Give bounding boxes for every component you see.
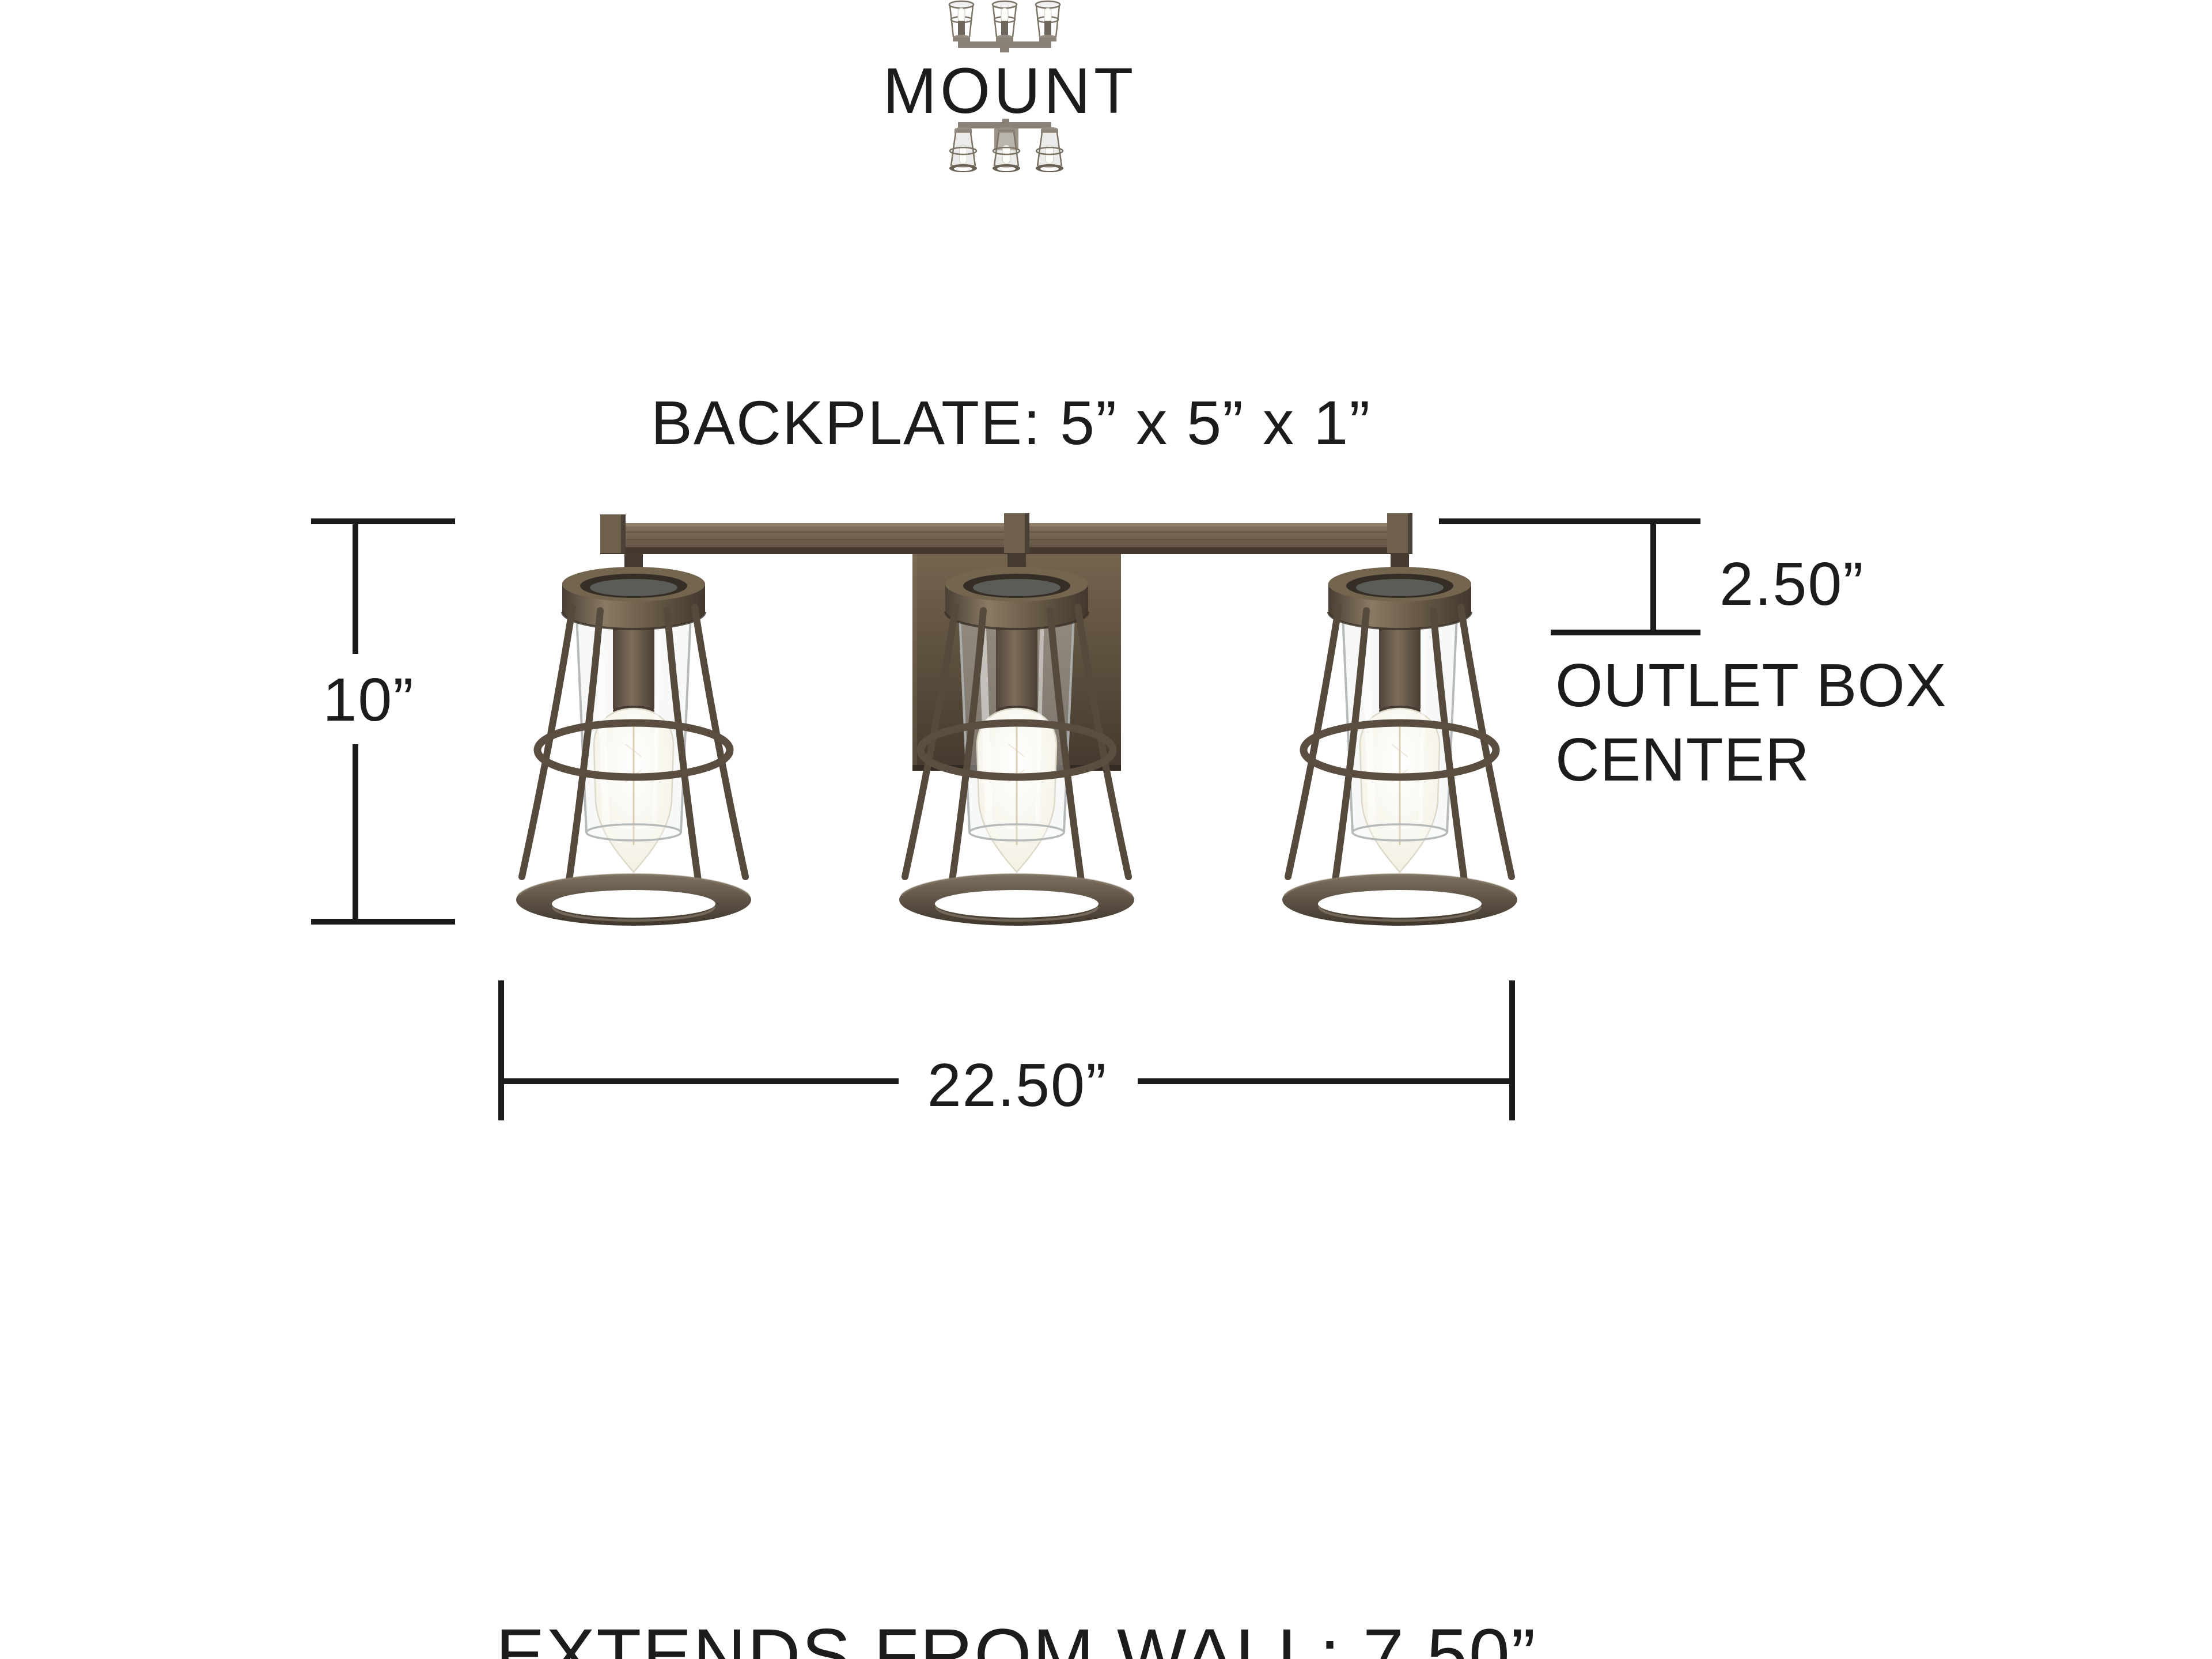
spec-diagram-canvas: MOUNT BACKPLATE: 5” x 5” x 1” 10” 2.50” …: [0, 0, 2212, 1659]
fixture-illustration: [0, 0, 2212, 1659]
width-dimension-label: 22.50”: [927, 1051, 1108, 1121]
backplate-dimension-label: BACKPLATE: 5” x 5” x 1”: [651, 387, 1371, 459]
vanity-light-mounted-up-thumbnail: [949, 1, 1060, 52]
mounting-bar: [600, 513, 1412, 554]
outlet-box-line1: OUTLET BOX: [1555, 649, 1947, 723]
extends-from-wall-label: EXTENDS FROM WALL: 7.50”: [495, 1613, 1536, 1659]
outlet-offset-dimension-lines: [1439, 521, 1700, 632]
mount-label: MOUNT: [883, 54, 1137, 128]
height-dimension-label: 10”: [259, 665, 478, 736]
cage-light-left: [516, 554, 751, 926]
outlet-offset-dimension-label: 2.50”: [1719, 550, 1865, 620]
cage-light-right: [1282, 554, 1517, 926]
outlet-box-center-label: OUTLET BOX CENTER: [1555, 649, 1947, 798]
outlet-box-line2: CENTER: [1555, 723, 1947, 797]
